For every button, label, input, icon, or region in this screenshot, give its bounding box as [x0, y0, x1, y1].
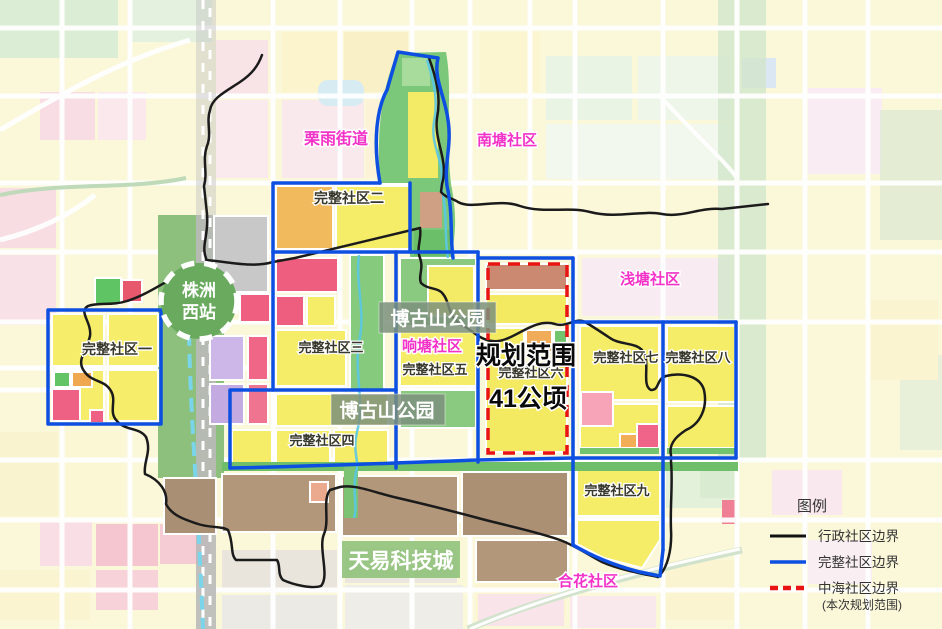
- tech-city-label: 天易科技城: [349, 549, 454, 573]
- legend-label-planning-boundary: 中海社区边界: [818, 581, 899, 596]
- legend-sublabel-planning-boundary: (本次规划范围): [822, 597, 902, 612]
- community-label-4: 完整社区四: [289, 433, 354, 448]
- legend-label-community-boundary: 完整社区边界: [818, 555, 899, 570]
- parcels-community-7-8: [580, 326, 735, 454]
- community-label-2: 完整社区二: [314, 190, 384, 206]
- community-label-9: 完整社区九: [584, 483, 649, 498]
- district-label-xiangtang: 响塘社区: [402, 337, 462, 355]
- community-label-5: 完整社区五: [402, 362, 467, 377]
- district-label-liyu: 栗雨街道: [304, 129, 368, 148]
- planning-map: 株洲 西站 博古山公园 博古山公园 天易科技城 栗雨街道 南塘社区 浅塘社区 响…: [0, 0, 942, 629]
- rail-strip-north: [196, 0, 216, 215]
- planning-area-label: 41公顷: [489, 385, 567, 413]
- park-label-upper: 博古山公园: [390, 307, 485, 330]
- district-label-hehua: 合花社区: [557, 572, 618, 590]
- legend-title: 图例: [797, 498, 827, 515]
- community-label-3: 完整社区三: [298, 340, 363, 355]
- legend-label-admin-boundary: 行政社区边界: [818, 529, 899, 544]
- planning-scope-label: 规划范围: [476, 342, 576, 370]
- station-badge: 株洲 西站: [161, 263, 237, 339]
- station-name-line1: 株洲: [182, 280, 216, 300]
- community-label-8: 完整社区八: [665, 350, 731, 365]
- station-name-line2: 西站: [182, 302, 216, 322]
- district-label-qiantang: 浅塘社区: [620, 270, 680, 288]
- district-label-nantang: 南塘社区: [477, 131, 537, 149]
- park-label-lower: 博古山公园: [339, 399, 434, 422]
- community-label-7: 完整社区七: [593, 350, 658, 365]
- community-label-1: 完整社区一: [82, 341, 152, 357]
- map-canvas: 株洲 西站 博古山公园 博古山公园 天易科技城 栗雨街道 南塘社区 浅塘社区 响…: [0, 0, 942, 629]
